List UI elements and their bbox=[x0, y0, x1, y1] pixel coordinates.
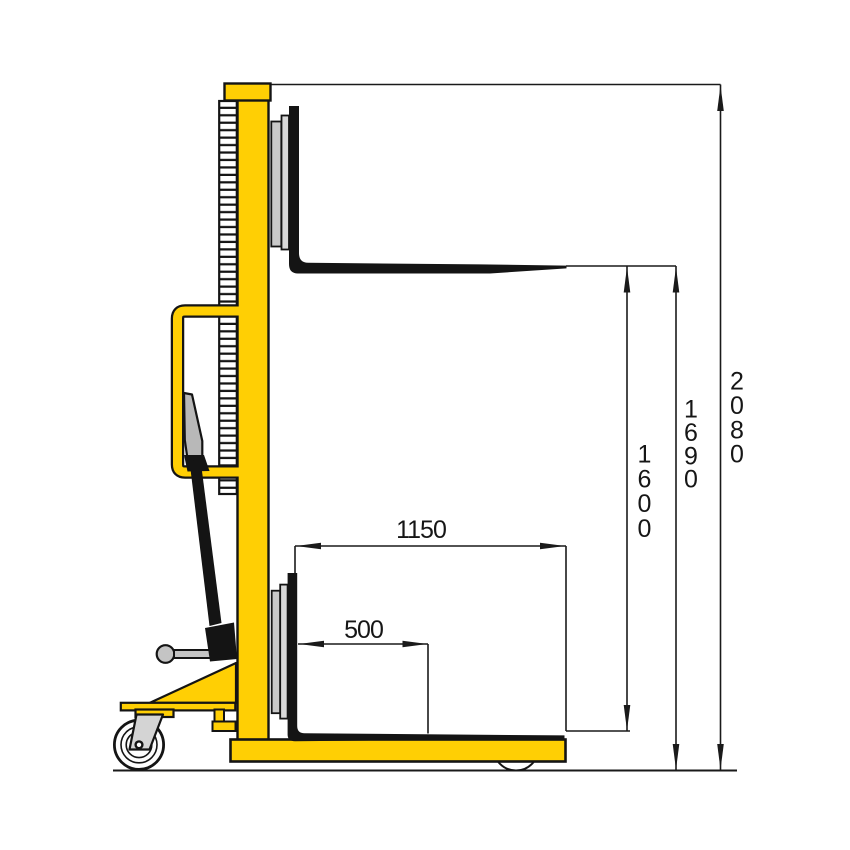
svg-text:500: 500 bbox=[344, 616, 383, 644]
svg-text:1600: 1600 bbox=[638, 441, 652, 543]
svg-text:1150: 1150 bbox=[396, 516, 446, 544]
svg-text:2080: 2080 bbox=[730, 368, 744, 469]
svg-text:1690: 1690 bbox=[684, 396, 698, 494]
